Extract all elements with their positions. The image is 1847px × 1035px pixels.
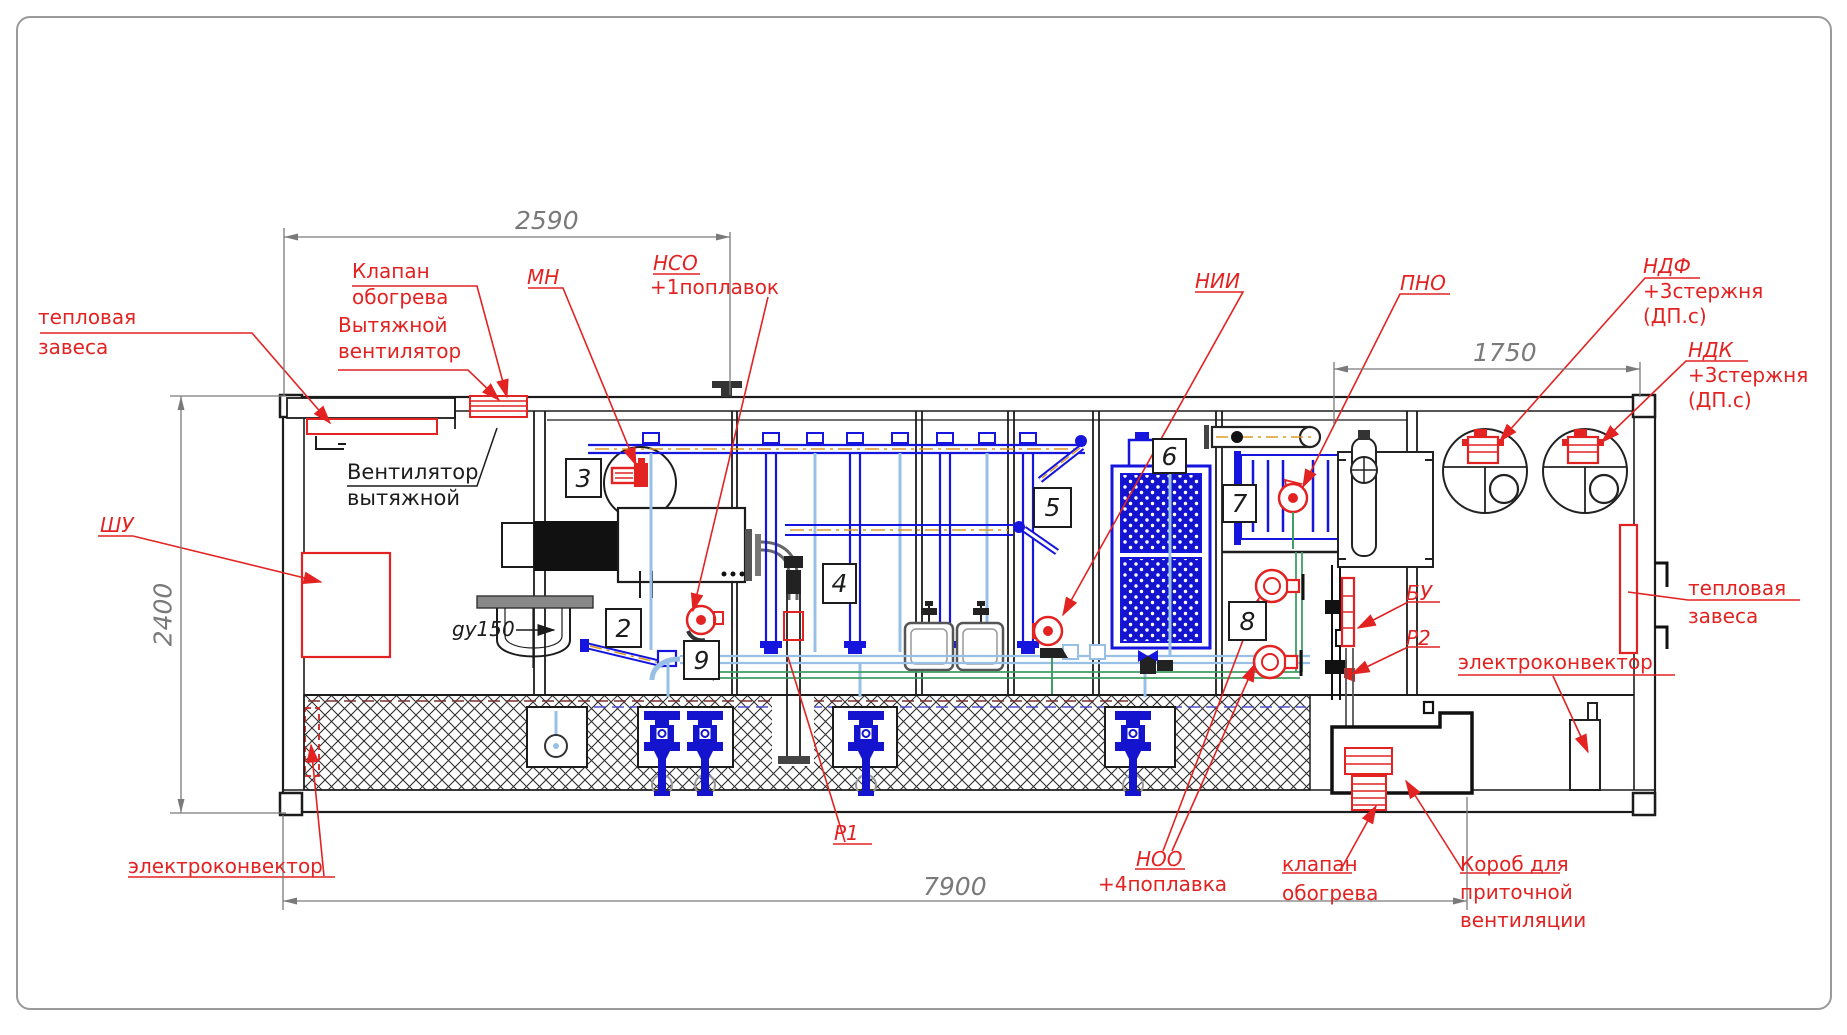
label-korob: Короб дляприточнойвентиляции — [1460, 850, 1586, 934]
label-ndf: НДФ+3стержня(ДП.с) — [1643, 254, 1763, 329]
drawing-page: 2590 1750 2400 7900 3 2 9 4 5 6 7 8 тепл… — [0, 0, 1847, 1035]
label-gy150: gy150 — [452, 616, 515, 642]
pos-box-5: 5 — [1033, 487, 1072, 528]
roof-vent-icon — [712, 381, 742, 397]
barrel-ndf — [1443, 429, 1527, 513]
nso-valve-icon — [687, 606, 723, 640]
column-unit — [1338, 430, 1433, 567]
pos-box-6: 6 — [1152, 438, 1187, 474]
label-nso: НСО — [653, 250, 698, 276]
label-heat-curtain-right: тепловаязавеса — [1688, 574, 1786, 630]
label-electroconvector-left: электроконвектор — [128, 853, 323, 879]
label-mn: МН — [527, 264, 559, 290]
dim-height-left: 2400 — [149, 550, 178, 680]
label-heating-valve-top: Клапанобогрева — [352, 258, 448, 310]
p1-discharge-pipe — [772, 594, 814, 766]
label-heat-curtain-left: тепловаязавеса — [38, 302, 136, 362]
label-ndk: НДК+3стержня(ДП.с) — [1688, 338, 1808, 413]
heat-curtain-right-icon — [1620, 525, 1637, 653]
nii-cylinder — [1204, 425, 1320, 449]
label-nso-float: +1поплавок — [650, 274, 779, 300]
label-r1: Р1 — [834, 820, 859, 846]
vestibule-left — [287, 398, 455, 657]
heat-curtain-left-icon — [307, 419, 437, 434]
label-r2: Р2 — [1406, 625, 1431, 651]
heating-valve-bottom-icon — [1345, 748, 1392, 774]
label-bu: БУ — [1406, 580, 1432, 606]
label-shu: ШУ — [100, 512, 134, 538]
pos-box-8: 8 — [1228, 601, 1267, 641]
shu-cabinet-icon — [302, 553, 390, 657]
pos-box-2: 2 — [605, 608, 642, 648]
pos-box-4: 4 — [822, 563, 857, 604]
label-nii: НИИ — [1195, 268, 1240, 294]
label-noo: НОО — [1136, 846, 1183, 872]
gray-tanks — [905, 601, 1003, 670]
dim-width-right: 1750 — [1473, 338, 1537, 367]
door-handles — [1655, 563, 1667, 649]
dim-width-bottom: 7900 — [923, 872, 987, 901]
dim-width-top: 2590 — [515, 206, 579, 235]
label-pno: ПНО — [1400, 270, 1446, 296]
noo-pump1-icon — [1256, 570, 1288, 602]
label-electroconvector-right: электроконвектор — [1458, 649, 1653, 675]
ndk-pump-icon — [1568, 437, 1598, 463]
ndf-pump-icon — [1468, 437, 1498, 463]
label-heating-valve-bottom: клапанобогрева — [1282, 850, 1378, 908]
pos-box-9: 9 — [683, 640, 720, 680]
pos-box-3: 3 — [565, 458, 602, 498]
label-exhaust-fan: Вытяжнойвентилятор — [338, 312, 461, 364]
label-noo-floats: +4поплавка — [1098, 871, 1227, 897]
barrel-ndk — [1543, 429, 1627, 513]
pos-box-7: 7 — [1222, 484, 1257, 523]
label-fan-black: Вентиляторвытяжной — [347, 459, 478, 511]
noo-pump2-icon — [1254, 646, 1286, 678]
